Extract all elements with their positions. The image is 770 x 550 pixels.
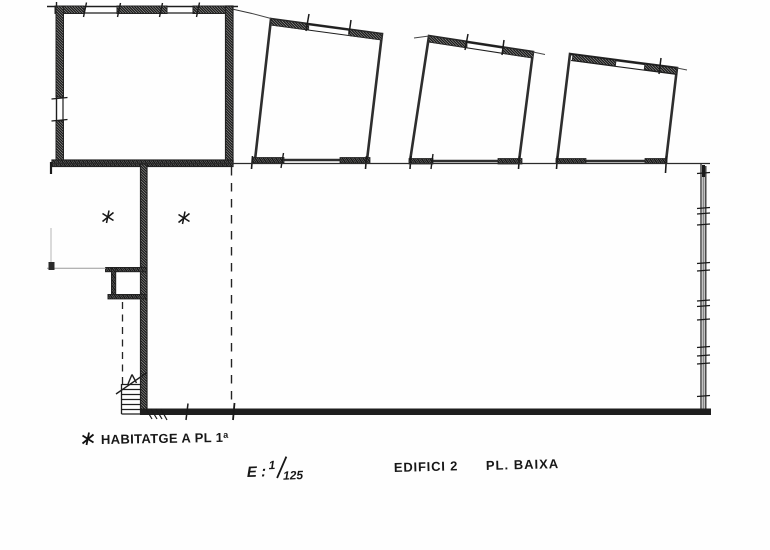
svg-text:125: 125 [283,468,304,483]
svg-text:PL. BAIXA: PL. BAIXA [486,456,560,473]
svg-text:E :: E : [247,463,267,481]
svg-text:HABITATGE A PL 1a: HABITATGE A PL 1a [101,430,230,447]
svg-text:1: 1 [268,458,275,472]
svg-text:EDIFICI 2: EDIFICI 2 [394,458,459,475]
